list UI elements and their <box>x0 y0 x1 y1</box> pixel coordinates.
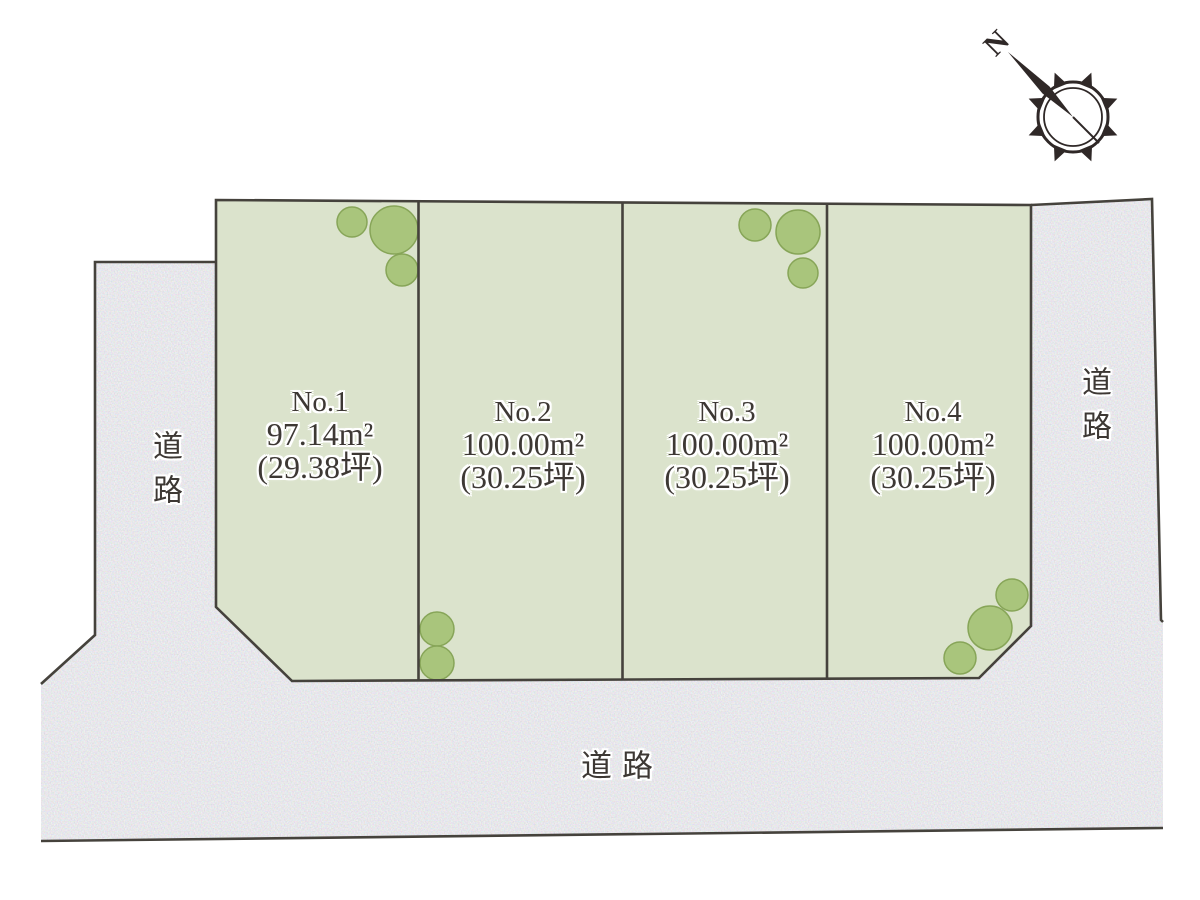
tree-icon <box>337 207 367 237</box>
lot-4-area-m2: 100.00m² <box>870 428 995 462</box>
tree-icon <box>420 612 454 646</box>
compass-north-label: N <box>977 24 1016 63</box>
tree-icon <box>739 209 771 241</box>
lot-label-4: No.4 100.00m² (30.25坪) <box>870 398 995 495</box>
tree-icon <box>996 579 1028 611</box>
lot-2-area-tsubo: (30.25坪) <box>460 461 585 495</box>
lot-1-area-m2: 97.14m² <box>257 418 382 452</box>
road-label-right: 道路 <box>1071 366 1115 454</box>
lot-2-area-m2: 100.00m² <box>460 428 585 462</box>
lot-3-area-m2: 100.00m² <box>664 428 789 462</box>
compass-needle-tail <box>1073 117 1099 143</box>
lot-1-number: No.1 <box>257 388 382 418</box>
tree-icon <box>420 646 454 680</box>
tree-icon <box>968 606 1012 650</box>
lot-1-area-tsubo: (29.38坪) <box>257 451 382 485</box>
tree-icon <box>776 210 820 254</box>
lot-label-1: No.1 97.14m² (29.38坪) <box>257 388 382 485</box>
lot-label-3: No.3 100.00m² (30.25坪) <box>664 398 789 495</box>
tree-icon <box>788 258 818 288</box>
tree-icon <box>386 254 418 286</box>
lot-3-number: No.3 <box>664 398 789 428</box>
lot-3-area-tsubo: (30.25坪) <box>664 461 789 495</box>
compass-icon: N <box>977 24 1120 164</box>
tree-icon <box>944 642 976 674</box>
road-label-left: 道路 <box>142 430 186 518</box>
lot-layout-diagram: N No.1 97.14m² (29.38坪) No.2 100.00m² (3… <box>0 0 1200 900</box>
lot-2-number: No.2 <box>460 398 585 428</box>
lot-label-2: No.2 100.00m² (30.25坪) <box>460 398 585 495</box>
road-label-bottom: 道路 <box>581 741 663 786</box>
lot-4-area-tsubo: (30.25坪) <box>870 461 995 495</box>
lot-4-number: No.4 <box>870 398 995 428</box>
tree-icon <box>370 206 418 254</box>
